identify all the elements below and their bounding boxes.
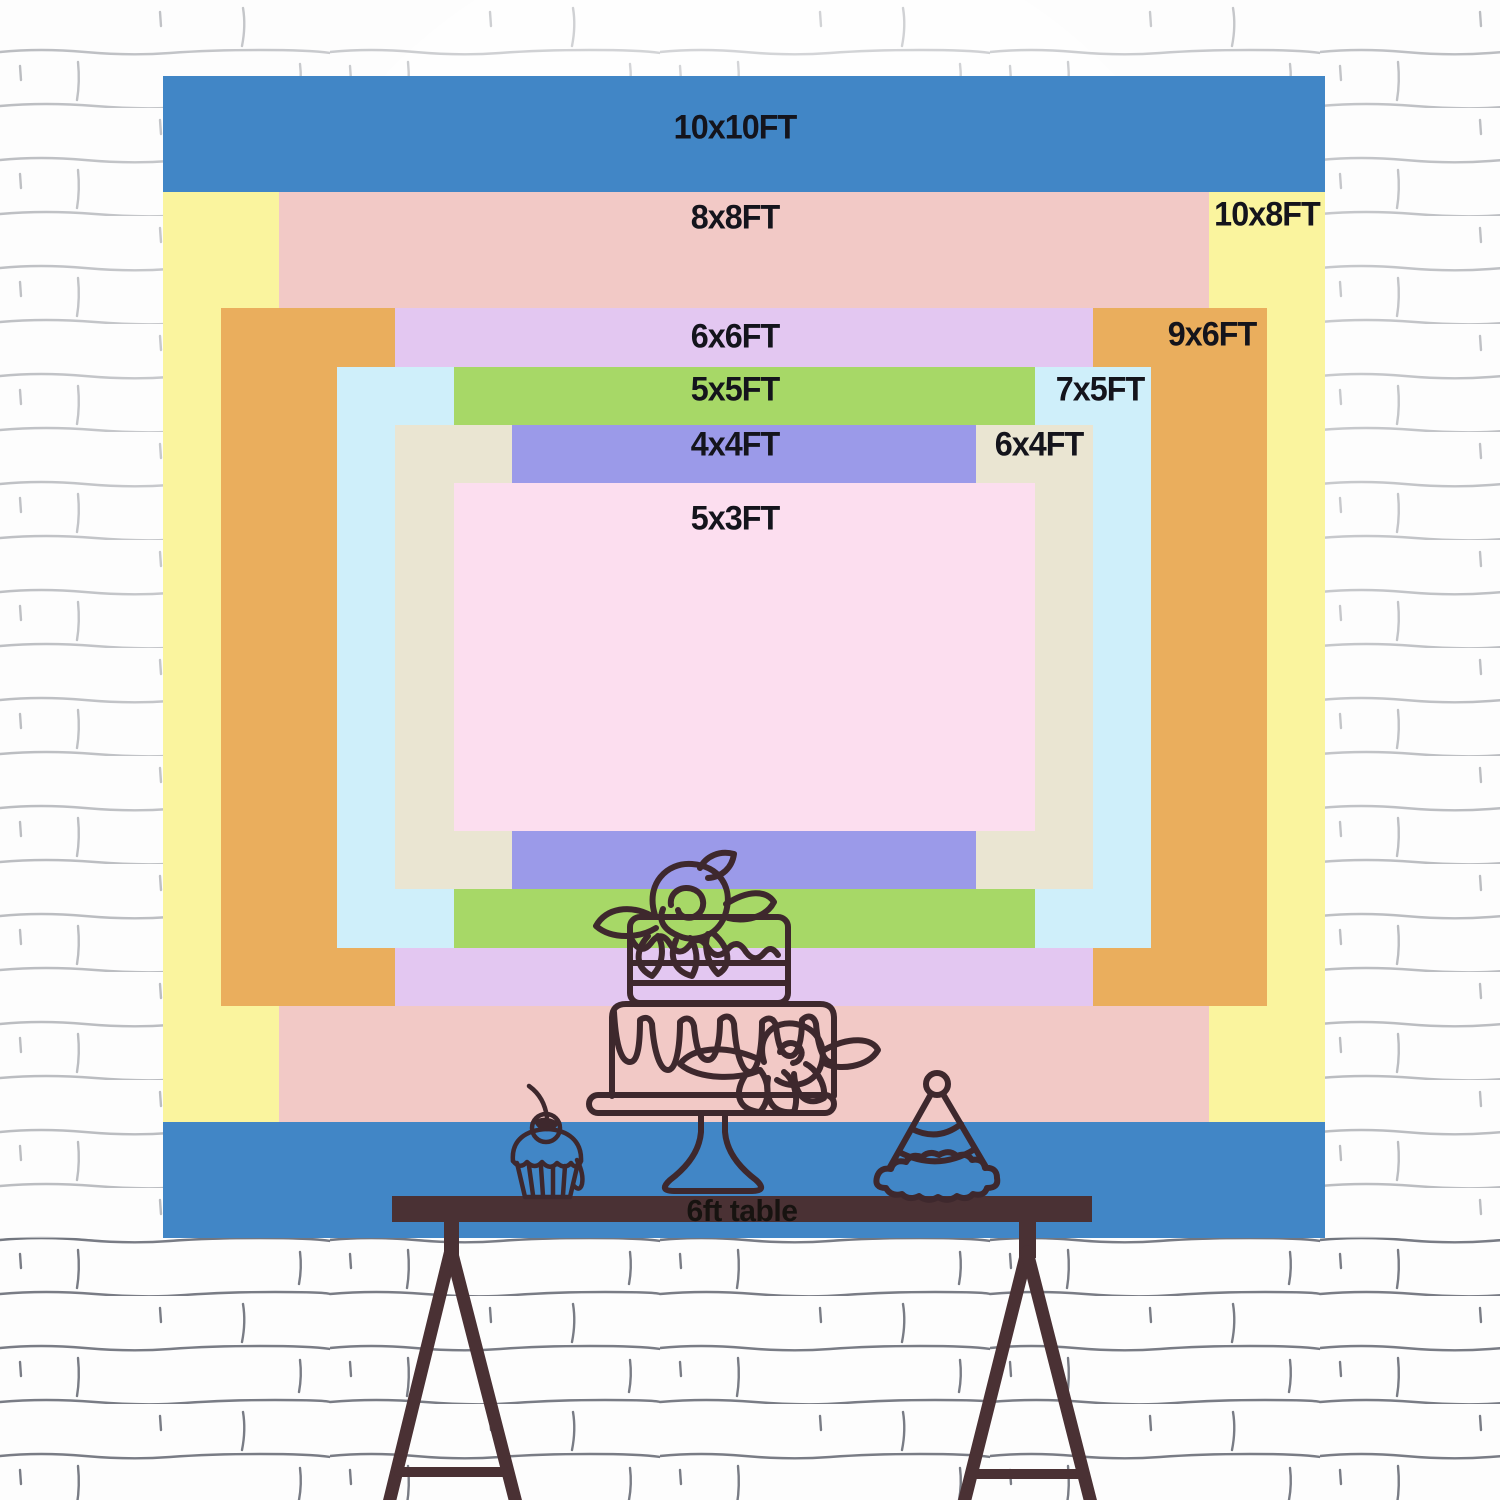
size-label-5x5ft: 5x5FT xyxy=(691,370,780,409)
size-label-7x5ft: 7x5FT xyxy=(1055,370,1144,409)
size-label-10x8ft: 10x8FT xyxy=(1214,196,1320,235)
size-label-9x6ft: 9x6FT xyxy=(1168,316,1257,355)
size-label-6x6ft: 6x6FT xyxy=(691,318,780,357)
backdrop-size-chart: 10x10FT10x8FT8x8FT9x6FT6x6FT7x5FT5x5FT6x… xyxy=(0,0,1500,1500)
size-label-10x10ft: 10x10FT xyxy=(674,109,797,148)
nested-size-rectangles: 10x10FT10x8FT8x8FT9x6FT6x6FT7x5FT5x5FT6x… xyxy=(0,0,1500,1500)
table-size-label: 6ft table xyxy=(687,1193,798,1229)
size-label-6x4ft: 6x4FT xyxy=(994,425,1083,464)
size-label-4x4ft: 4x4FT xyxy=(691,425,780,464)
size-label-5x3ft: 5x3FT xyxy=(691,499,780,538)
size-label-8x8ft: 8x8FT xyxy=(691,199,780,238)
